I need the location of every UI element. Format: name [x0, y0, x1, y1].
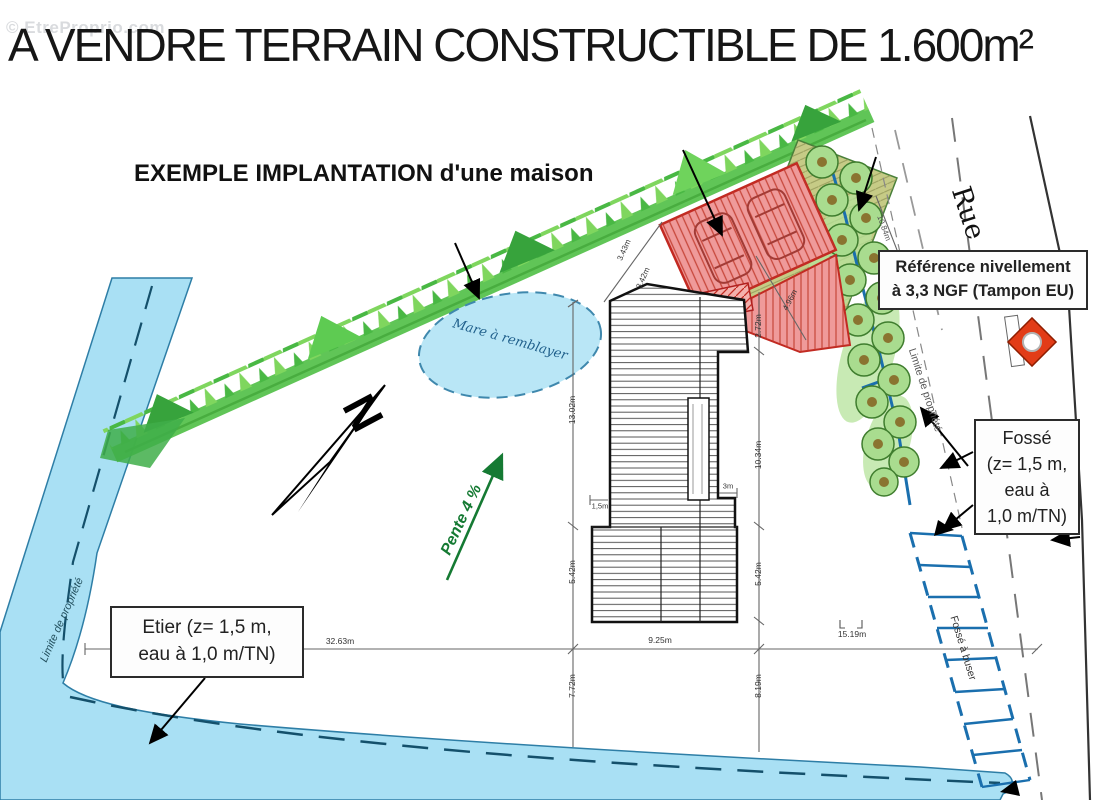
tampon-eu-marker — [1005, 315, 1056, 366]
dim-house-right-top: 2.72m — [753, 314, 763, 338]
site-plan-drawing: N — [0, 0, 1109, 800]
callout-etier-line1: Etier (z= 1,5 m, — [112, 615, 302, 642]
dim-house-left: 13.02m — [567, 396, 577, 424]
house-outline — [592, 284, 748, 622]
callout-reference-line2: à 3,3 NGF (Tampon EU) — [880, 280, 1086, 304]
page-title: A VENDRE TERRAIN CONSTRUCTIBLE DE 1.600m… — [8, 18, 1032, 72]
callout-fosse-line1: Fossé — [976, 425, 1078, 451]
dim-bottom-right: 15.19m — [838, 629, 866, 639]
dim-bottom-left: 32.63m — [326, 636, 354, 646]
dim-house-right-low: 5.42m — [753, 562, 763, 586]
plan-cartouche — [688, 398, 709, 500]
north-arrow: N — [272, 385, 394, 515]
callout-fosse-line3: eau à — [976, 477, 1078, 503]
dim-house-left-low: 5.42m — [567, 560, 577, 584]
dim-notch-right: 3m — [723, 482, 733, 491]
callout-reference-nivellement: Référence nivellement à 3,3 NGF (Tampon … — [878, 250, 1088, 310]
callout-reference-line1: Référence nivellement — [880, 256, 1086, 280]
dim-notch-left: 1,5m — [592, 502, 609, 511]
dim-depth-left: 7.72m — [567, 674, 577, 698]
north-letter: N — [333, 386, 395, 440]
callout-etier: Etier (z= 1,5 m, eau à 1,0 m/TN) — [110, 606, 304, 678]
callout-fosse-line2: (z= 1,5 m, — [976, 451, 1078, 477]
callout-etier-line2: eau à 1,0 m/TN) — [112, 642, 302, 669]
dim-house-right-mid: 10.34m — [753, 441, 763, 469]
dim-bottom-center: 9.25m — [648, 635, 672, 645]
dim-depth-right: 8.19m — [753, 674, 763, 698]
subtitle: EXEMPLE IMPLANTATION d'une maison — [134, 160, 594, 188]
callout-fosse: Fossé (z= 1,5 m, eau à 1,0 m/TN) — [974, 419, 1080, 535]
site-plan-page: N © EtreProprio.com A VENDRE TERRAIN CON… — [0, 0, 1109, 800]
callout-fosse-line4: 1,0 m/TN) — [976, 503, 1078, 529]
